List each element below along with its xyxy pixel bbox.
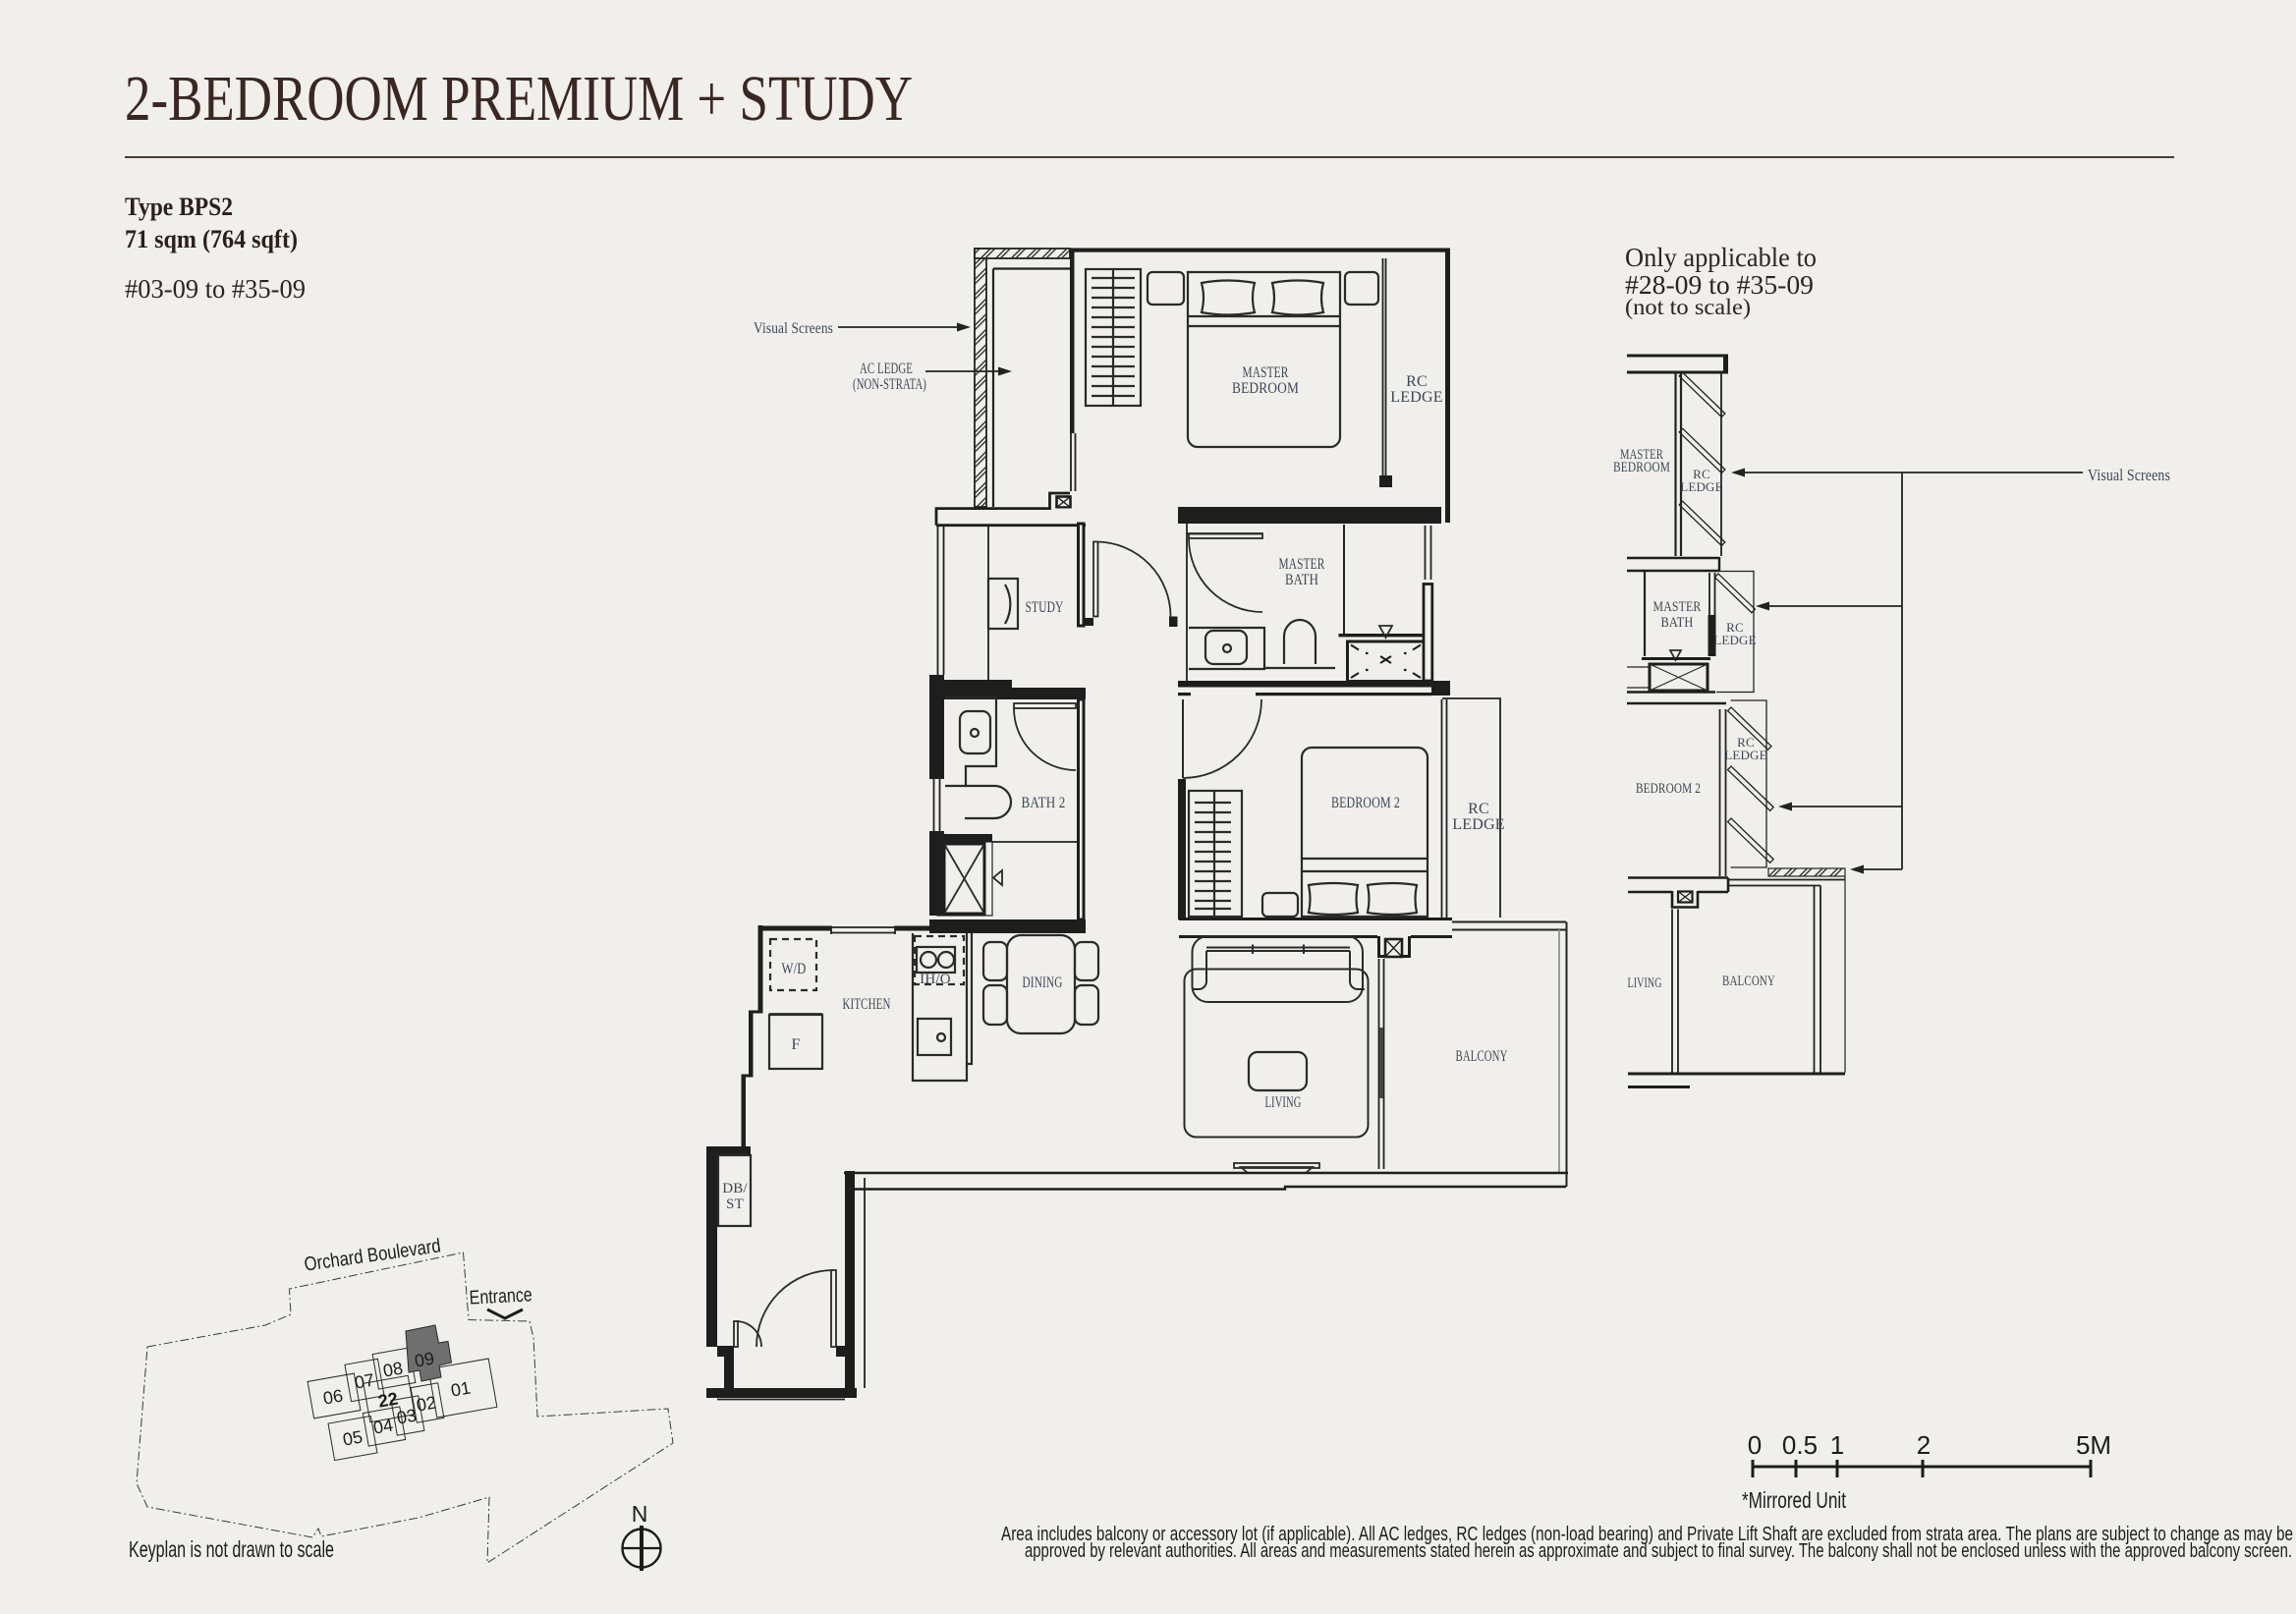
svg-text:approved by relevant authoriti: approved by relevant authorities. All ar… [1025, 1540, 2292, 1562]
svg-text:KITCHEN: KITCHEN [843, 996, 891, 1013]
svg-text:MASTER: MASTER [1243, 364, 1289, 381]
svg-text:MASTER: MASTER [1279, 556, 1325, 573]
svg-text:(NON-STRATA): (NON-STRATA) [853, 376, 926, 393]
svg-text:LIVING: LIVING [1265, 1094, 1302, 1111]
svg-text:BEDROOM: BEDROOM [1232, 380, 1299, 397]
svg-text:(not to scale): (not to scale) [1625, 295, 1751, 319]
svg-text:2: 2 [1917, 1430, 1931, 1460]
svg-text:2-BEDROOM PREMIUM + STUDY: 2-BEDROOM PREMIUM + STUDY [125, 63, 913, 135]
svg-text:1: 1 [1830, 1430, 1844, 1460]
svg-text:LIVING: LIVING [1628, 975, 1662, 991]
svg-text:N: N [632, 1501, 648, 1527]
svg-text:LEDGE: LEDGE [1452, 816, 1504, 833]
svg-text:Visual Screens: Visual Screens [2088, 466, 2170, 484]
svg-text:DINING: DINING [1023, 974, 1063, 991]
svg-text:Visual Screens: Visual Screens [754, 320, 833, 337]
svg-text:BEDROOM: BEDROOM [1613, 460, 1670, 475]
svg-text:IH/O: IH/O [920, 972, 951, 987]
svg-text:STUDY: STUDY [1026, 599, 1064, 616]
svg-text:BATH 2: BATH 2 [1022, 795, 1066, 811]
svg-text:MASTER: MASTER [1653, 599, 1702, 615]
svg-text:Keyplan is not drawn to scale: Keyplan is not drawn to scale [129, 1536, 334, 1562]
svg-text:W/D: W/D [782, 961, 807, 977]
svg-text:03: 03 [395, 1406, 418, 1428]
svg-text:Only applicable to: Only applicable to [1625, 243, 1817, 272]
svg-text:04: 04 [371, 1416, 394, 1438]
svg-text:BATH: BATH [1285, 572, 1318, 588]
svg-text:0.5: 0.5 [1782, 1430, 1818, 1460]
svg-text:BATH: BATH [1661, 615, 1694, 631]
svg-text:5M: 5M [2076, 1430, 2111, 1460]
svg-text:BALCONY: BALCONY [1456, 1048, 1508, 1065]
svg-text:DB/: DB/ [722, 1181, 748, 1197]
svg-text:BEDROOM 2: BEDROOM 2 [1331, 795, 1400, 811]
svg-text:07: 07 [353, 1370, 375, 1393]
svg-text:08: 08 [381, 1359, 404, 1381]
svg-text:71 sqm (764 sqft): 71 sqm (764 sqft) [125, 225, 298, 253]
svg-text:02: 02 [415, 1393, 437, 1416]
svg-text:05: 05 [341, 1427, 364, 1450]
svg-text:ST: ST [726, 1197, 744, 1212]
svg-text:*Mirrored Unit: *Mirrored Unit [1742, 1487, 1846, 1513]
svg-text:RC: RC [1468, 801, 1489, 817]
svg-text:LEDGE: LEDGE [1713, 633, 1757, 647]
svg-text:Entrance: Entrance [469, 1284, 532, 1308]
svg-text:0: 0 [1748, 1430, 1762, 1460]
svg-text:AC LEDGE: AC LEDGE [860, 361, 913, 377]
svg-text:BEDROOM 2: BEDROOM 2 [1636, 781, 1701, 797]
svg-text:LEDGE: LEDGE [1680, 479, 1723, 494]
svg-text:BALCONY: BALCONY [1722, 974, 1775, 989]
svg-text:F: F [791, 1036, 800, 1053]
svg-text:09: 09 [413, 1349, 435, 1371]
svg-text:RC: RC [1406, 373, 1428, 390]
svg-text:01: 01 [449, 1378, 472, 1401]
svg-text:LEDGE: LEDGE [1724, 748, 1767, 762]
svg-text:#03-09 to #35-09: #03-09 to #35-09 [125, 274, 306, 304]
svg-text:LEDGE: LEDGE [1390, 389, 1442, 406]
svg-text:06: 06 [321, 1386, 344, 1409]
svg-text:Type BPS2: Type BPS2 [125, 193, 233, 221]
